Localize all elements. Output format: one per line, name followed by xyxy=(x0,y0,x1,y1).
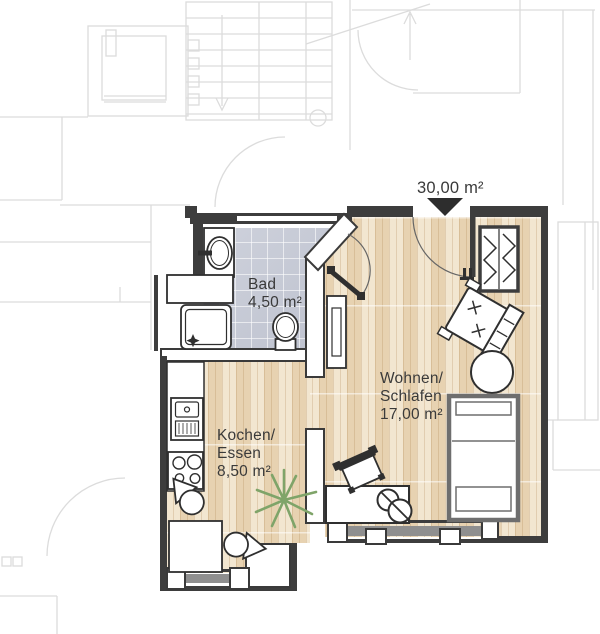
wall-top-bath-inset xyxy=(237,216,337,221)
living-window-jamb-left xyxy=(327,518,348,543)
living-window-jamb-right xyxy=(481,518,499,540)
kitchen-area: 8,50 m² xyxy=(217,463,275,481)
wall-step-vertical xyxy=(291,543,297,589)
entrance-marker xyxy=(427,198,463,216)
floorplan-canvas: 30,00 m² Bad 4,50 m² Kochen/ Essen 8,50 … xyxy=(0,0,600,634)
stairwell-linework xyxy=(186,0,430,150)
living-name-line2: Schlafen xyxy=(380,388,443,406)
bathroom-label: Bad 4,50 m² xyxy=(248,276,302,312)
bathroom-area: 4,50 m² xyxy=(248,294,302,312)
living-window-inner-line xyxy=(348,520,486,523)
wall-top-entry-left xyxy=(347,206,413,217)
kitchen-name-line2: Essen xyxy=(217,445,275,463)
wall-shower-niche xyxy=(154,275,158,351)
elevator-linework xyxy=(88,26,199,116)
wall-right xyxy=(541,206,548,543)
kitchen-name-line1: Kochen/ xyxy=(217,427,275,445)
bathroom-name: Bad xyxy=(248,276,302,294)
wall-left-kitchen xyxy=(160,356,167,591)
kitchen-label: Kochen/ Essen 8,50 m² xyxy=(217,427,275,481)
living-window-mullion-1 xyxy=(365,528,387,545)
living-window-mullion-2 xyxy=(439,528,461,545)
living-area: 17,00 m² xyxy=(380,406,443,424)
living-name-line1: Wohnen/ xyxy=(380,370,443,388)
total-area-text: 30,00 m² xyxy=(417,179,484,197)
kitchen-window-jamb-right xyxy=(229,567,250,590)
wall-left-bath xyxy=(193,213,203,277)
kitchen-window-sill xyxy=(186,574,229,583)
shower-drain-icon xyxy=(186,334,199,347)
kitchen-window-inner-line xyxy=(186,569,229,572)
wall-kitchen-living-stub xyxy=(305,428,325,524)
wall-bath-kitchen xyxy=(160,348,310,362)
wall-bath-living xyxy=(305,258,325,378)
total-area-label: 30,00 m² xyxy=(417,179,484,197)
kitchen-window-jamb-left xyxy=(166,567,186,590)
facade-step-block xyxy=(245,543,291,588)
living-label: Wohnen/ Schlafen 17,00 m² xyxy=(380,370,443,424)
wall-top-entry-right xyxy=(470,206,548,217)
